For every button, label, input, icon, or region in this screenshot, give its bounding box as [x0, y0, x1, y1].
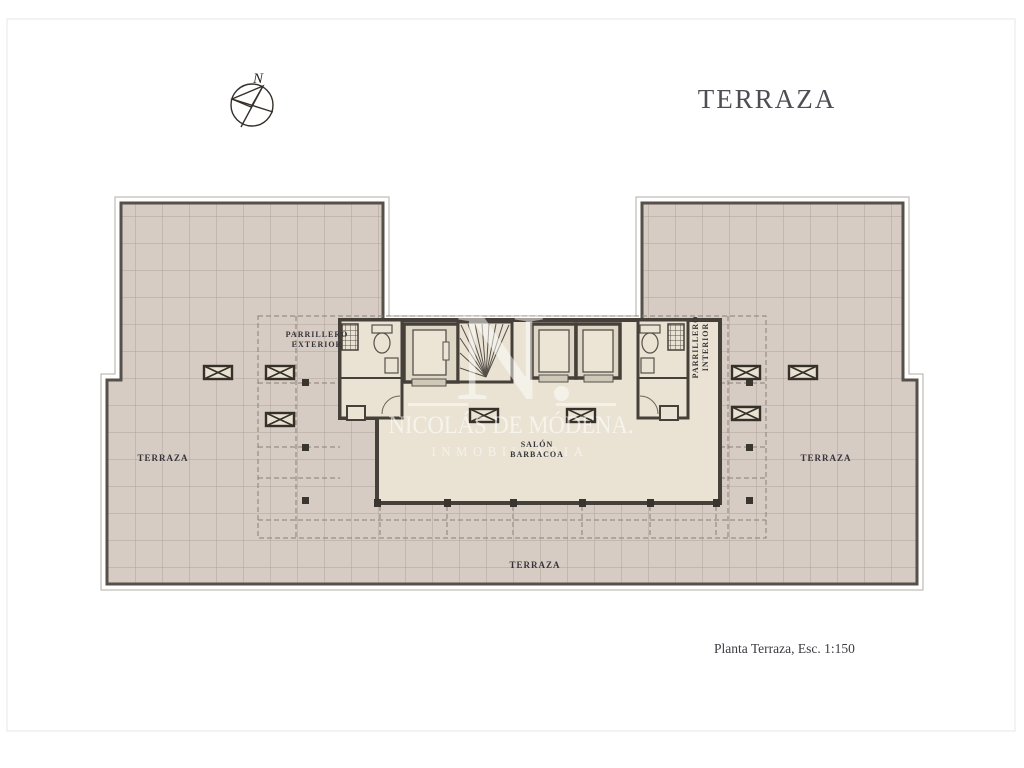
scale-note: Planta Terraza, Esc. 1:150 [714, 641, 855, 656]
compass-north-label: N [252, 71, 264, 87]
page-title: TERRAZA [698, 84, 837, 114]
duct-hatch [668, 324, 684, 350]
elevator-shaft-c [576, 324, 620, 382]
elevator-sill [412, 379, 446, 386]
vent-icon [266, 413, 294, 426]
label-parrillero-exterior-1: PARRILLERO [286, 330, 349, 339]
sink-icon [641, 358, 654, 373]
grill-box-left [347, 406, 365, 420]
label-parrillero-interior-2: INTERIOR [701, 323, 710, 371]
floor-plan-page: N. NICOLÁS DE MÓDENA. INMOBILIARIA TERRA… [0, 0, 1024, 768]
label-parrillero-interior-1: PARRILLERO [691, 316, 700, 379]
watermark-rule-right [556, 403, 616, 406]
label-terraza-bottom: TERRAZA [509, 560, 560, 570]
label-terraza-right: TERRAZA [800, 453, 851, 463]
vent-icon [789, 366, 817, 379]
watermark-rule-left [408, 403, 468, 406]
elevator-sill [584, 375, 613, 382]
watermark-monogram: N. [455, 288, 578, 427]
floor-plan-drawing: N. NICOLÁS DE MÓDENA. INMOBILIARIA TERRA… [0, 0, 1024, 768]
label-terraza-left: TERRAZA [137, 453, 188, 463]
vent-icon [732, 366, 760, 379]
elevator-car [583, 330, 613, 372]
label-salon-2: BARBACOA [510, 450, 564, 459]
bathroom-left [340, 320, 402, 418]
toilet-icon [642, 333, 658, 353]
north-compass: N [231, 71, 273, 127]
elevator-car [413, 330, 446, 375]
elevator-shaft-a [404, 324, 458, 386]
vent-icon [266, 366, 294, 379]
bathroom-right [638, 320, 688, 418]
sink-icon [385, 358, 398, 373]
toilet-icon [374, 333, 390, 353]
vent-icon [204, 366, 232, 379]
label-salon-1: SALÓN [521, 439, 554, 449]
grill-box-right [660, 406, 678, 420]
vent-icon [732, 407, 760, 420]
label-parrillero-exterior-2: EXTERIOR [292, 340, 343, 349]
watermark-name: NICOLÁS DE MÓDENA. [389, 411, 634, 439]
